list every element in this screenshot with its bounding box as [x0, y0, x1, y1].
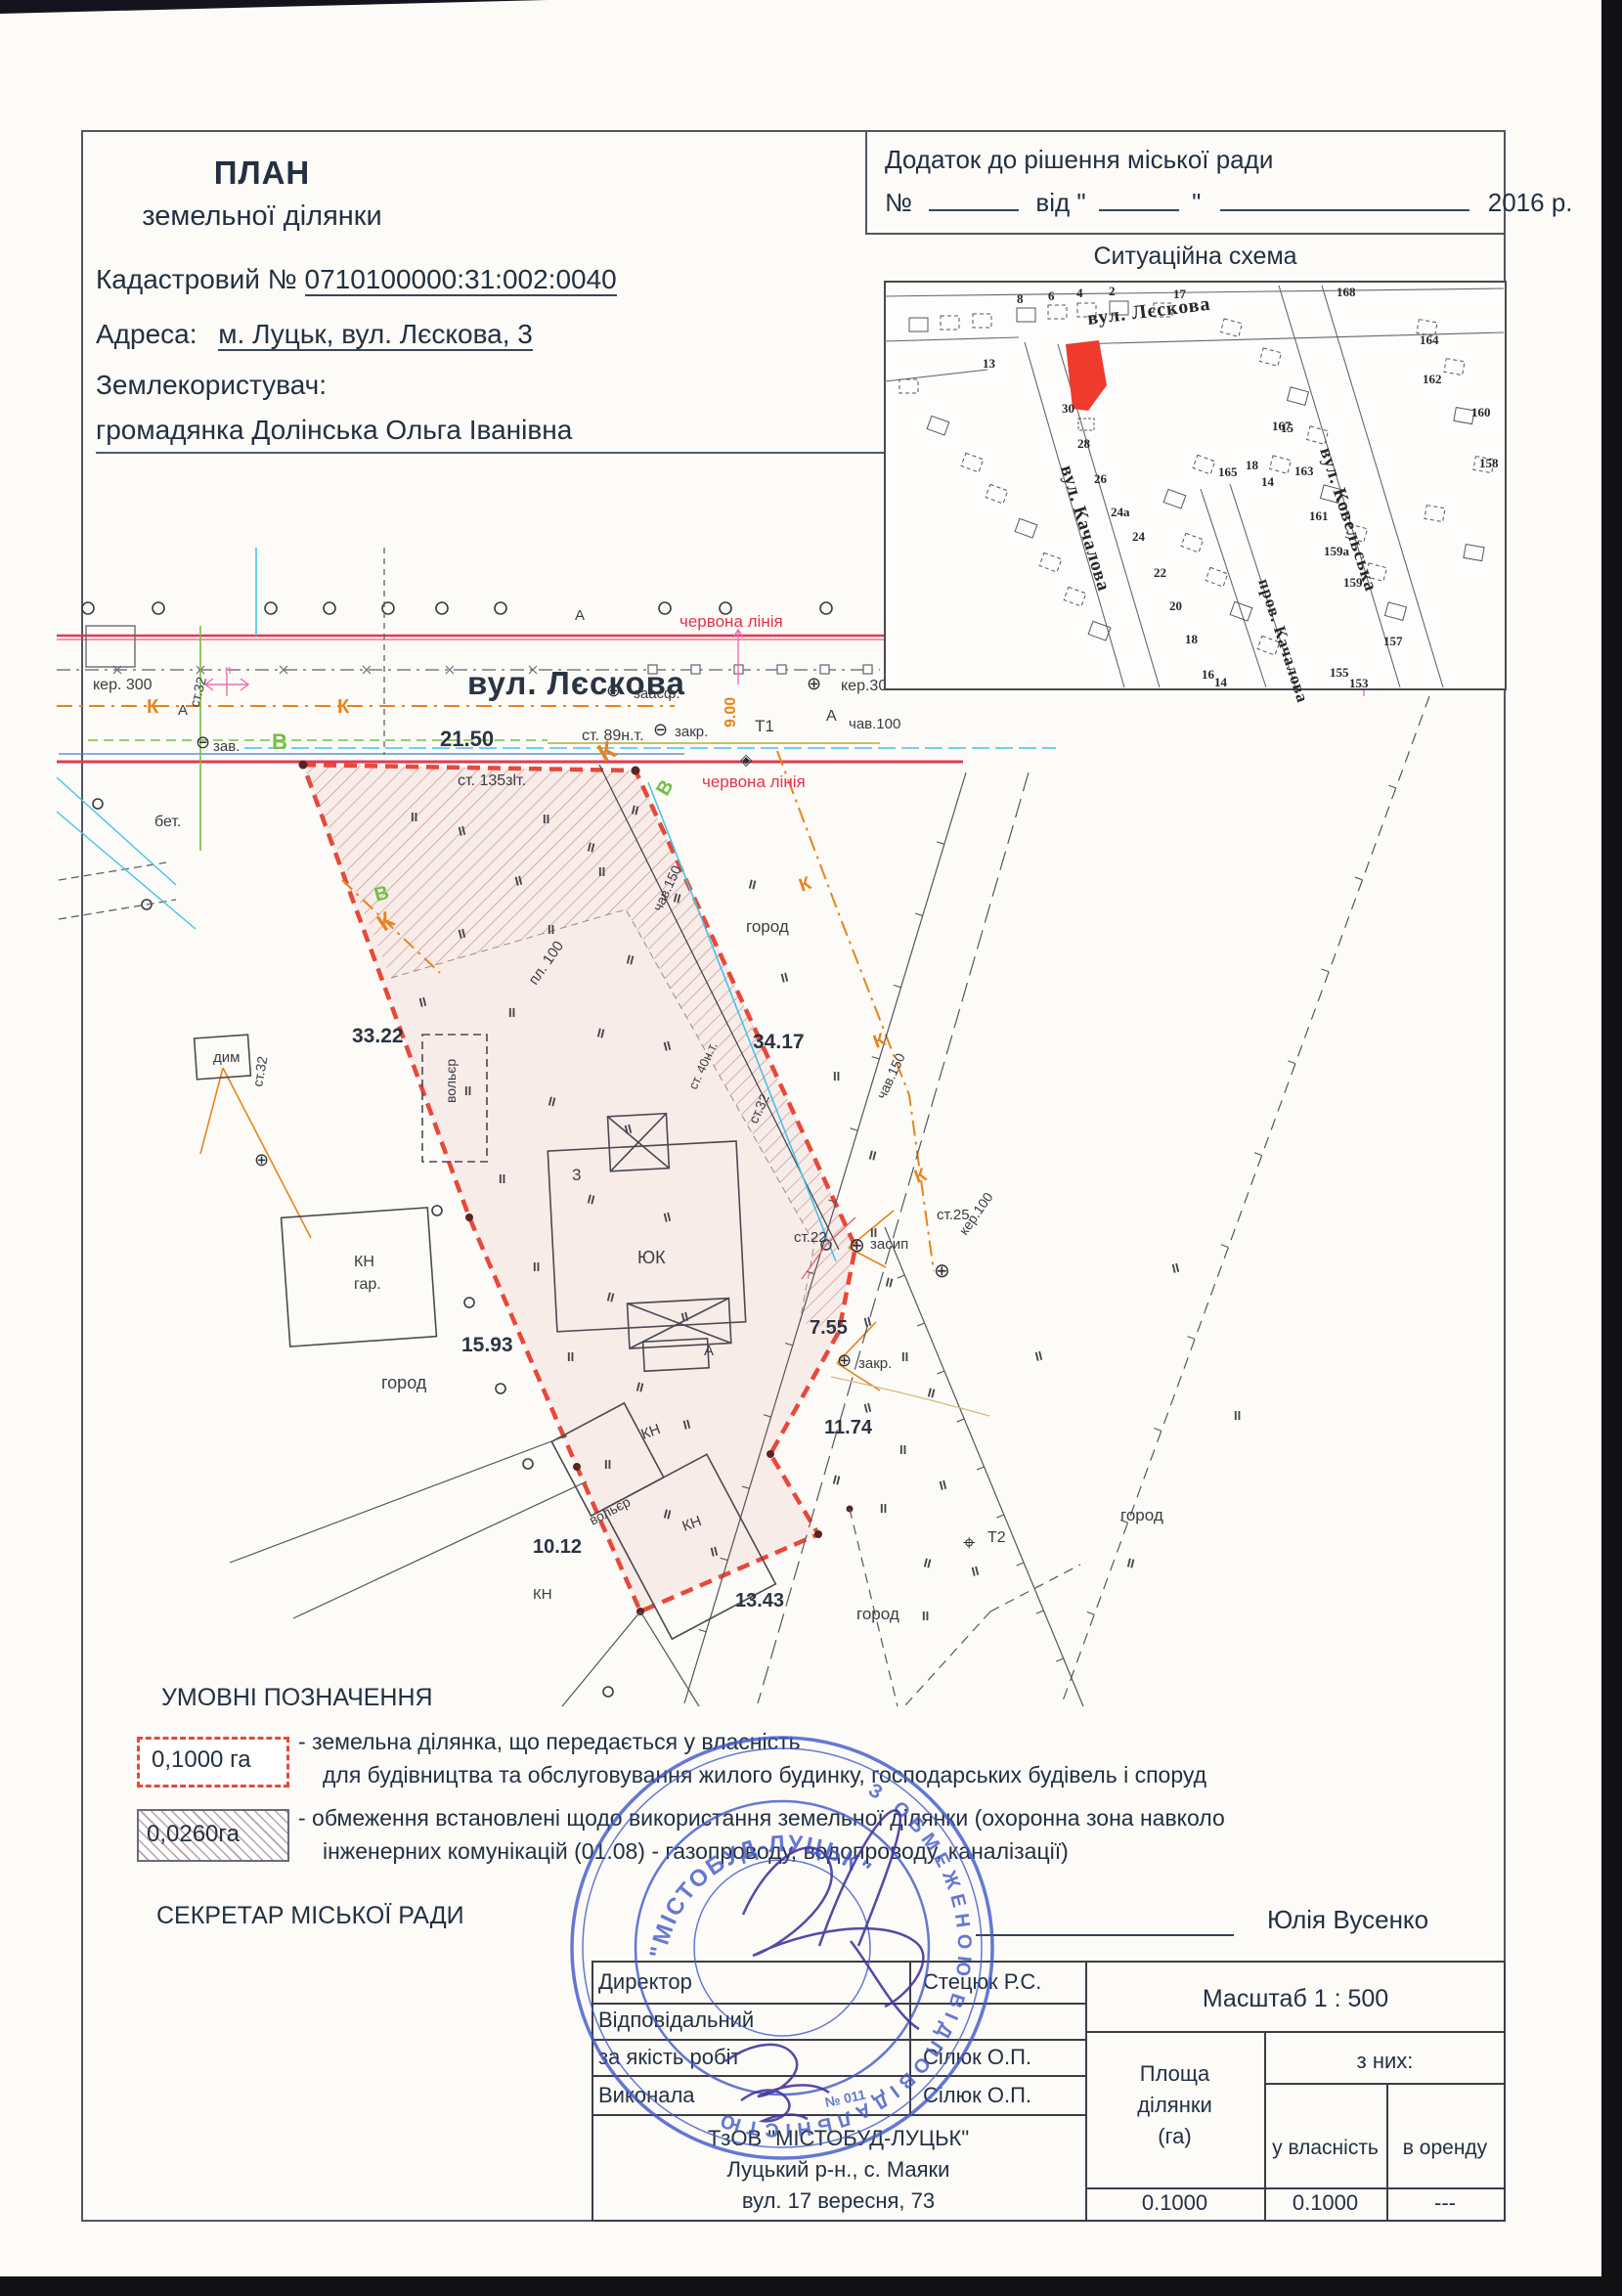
map-label: ст.22	[794, 1229, 827, 1246]
situation-house-number: 159	[1343, 575, 1363, 590]
grass-mark: II	[884, 1274, 895, 1290]
grass-mark: II	[586, 1191, 596, 1207]
situation-house	[941, 316, 959, 330]
map-label: ЮК	[637, 1248, 666, 1267]
grass-mark: II	[567, 1349, 574, 1364]
grass-mark: II	[508, 1005, 515, 1020]
survey-tick	[851, 1128, 858, 1130]
survey-tick	[1188, 1337, 1196, 1340]
map-label: К	[592, 734, 621, 768]
map-label: кер. 300	[93, 677, 153, 693]
frame-right	[1504, 130, 1506, 2222]
map-label: ст. 89н.т.	[582, 728, 644, 744]
address-label: Адреса:	[96, 319, 197, 349]
map-label: ст.32	[745, 1091, 772, 1126]
map-label: А	[178, 702, 188, 719]
map-label: В	[272, 729, 287, 754]
map-symbol-icon: ⌖	[963, 1531, 975, 1556]
secretary-label: СЕКРЕТАР МІСЬКОЇ РАДИ	[156, 1902, 464, 1930]
annex-line1: Додаток до рішення міської ради	[885, 145, 1273, 175]
responsible-label-1: Відповідальний	[598, 2008, 754, 2033]
map-label: закр.	[858, 1355, 892, 1372]
survey-tick	[1254, 1153, 1262, 1156]
grass-mark: II	[709, 1544, 720, 1560]
survey-tick	[807, 1271, 814, 1273]
survey-tick	[977, 1467, 984, 1470]
survey-tick	[721, 1558, 728, 1560]
map-label: 10.12	[533, 1536, 582, 1558]
grass-mark: II	[662, 1210, 673, 1225]
map-label: вул. Лєскова	[467, 665, 685, 701]
situation-house	[1163, 489, 1186, 508]
map-label: К	[373, 906, 400, 937]
situation-house	[973, 314, 991, 328]
map-symbol-icon: ◈	[740, 750, 753, 769]
map-label: 9.00	[723, 697, 739, 728]
situation-house	[961, 453, 984, 472]
frame-top	[81, 130, 1506, 132]
landuser-label: Землекористувач:	[96, 370, 327, 401]
situation-house	[1384, 602, 1406, 620]
situation-house	[1287, 387, 1308, 405]
grass-mark: II	[464, 1083, 471, 1098]
map-label: К	[797, 873, 814, 897]
survey-tick	[894, 985, 901, 987]
situation-street-label: пров. Качалова	[1254, 576, 1312, 705]
situation-house	[1015, 518, 1037, 538]
grass-mark: II	[595, 1025, 606, 1040]
map-symbol-icon: ⊕	[934, 1258, 950, 1282]
grass-mark: II	[1033, 1348, 1044, 1364]
map-label: К	[871, 1030, 889, 1053]
situation-house-number: 168	[1337, 285, 1356, 299]
cadastral-line: Кадастровий № 0710100000:31:002:0040	[96, 264, 617, 295]
grass-mark: II	[970, 1564, 981, 1579]
area-label-1: Площа	[1085, 2061, 1264, 2087]
legend-plot-value: 0,1000 га	[152, 1746, 251, 1774]
pen-enclosure	[422, 1035, 487, 1162]
map-label: город	[1120, 1506, 1163, 1524]
map-label: город	[746, 917, 789, 936]
map-label: чав.150	[649, 862, 684, 913]
situation-house-number: 165	[1218, 464, 1238, 479]
cadastral-label: Кадастровий №	[96, 264, 297, 294]
situation-house	[1064, 587, 1086, 606]
rent-label: в оренду	[1386, 2137, 1504, 2160]
outbuildings	[551, 1380, 775, 1645]
area-label-2: ділянки	[1085, 2093, 1264, 2118]
situation-house-number: 157	[1383, 634, 1403, 648]
map-label: чав.150	[873, 1050, 908, 1101]
area-label-3: (га)	[1085, 2124, 1264, 2149]
survey-tick	[1056, 1658, 1063, 1661]
situation-house	[1454, 408, 1474, 424]
grass-mark: II	[457, 823, 467, 839]
situation-house-number: 13	[983, 356, 996, 371]
map-symbol-icon: ⊕	[606, 681, 621, 701]
map-symbol-icon: ⊕	[807, 674, 821, 694]
survey-tick	[1120, 1520, 1128, 1523]
grass-mark: II	[1170, 1260, 1181, 1276]
page-subtitle: земельної ділянки	[115, 200, 409, 233]
map-symbol-icon: ⊖	[653, 720, 668, 740]
map-label: закр.	[675, 724, 708, 740]
grass-mark: II	[1125, 1555, 1136, 1570]
map-label: КН	[354, 1254, 374, 1270]
situation-house-number: 30	[1062, 401, 1074, 416]
annex-date-blank	[1099, 184, 1179, 211]
map-label: КН	[680, 1513, 704, 1535]
situation-house-number: 20	[1169, 598, 1182, 613]
annex-box-left	[865, 130, 867, 234]
map-label: Т1	[755, 717, 774, 735]
annex-no-blank	[929, 184, 1019, 211]
situation-house	[1077, 303, 1096, 317]
address-line: Адреса: м. Луцьк, вул. Лєскова, 3	[96, 319, 533, 350]
survey-tick	[1017, 1563, 1024, 1566]
survey-tick	[785, 1344, 793, 1346]
survey-tick	[828, 1200, 836, 1202]
situation-house	[1181, 533, 1204, 552]
situation-house	[1230, 601, 1252, 621]
grass-mark: II	[604, 1457, 611, 1472]
company-line2: Луцький р-н., с. Маяки	[592, 2157, 1085, 2183]
annex-vid-label: від "	[1035, 188, 1085, 217]
area-value: 0.1000	[1085, 2190, 1264, 2216]
situation-house-number: 161	[1309, 508, 1329, 523]
survey-tick	[1388, 785, 1396, 788]
situation-house-number: 158	[1479, 456, 1499, 470]
map-label: Т2	[987, 1529, 1006, 1546]
situation-house	[1259, 348, 1281, 366]
map-label: червона лінія	[702, 773, 806, 791]
survey-tick	[898, 1275, 904, 1278]
legend-restriction-line2: інженерних комунікацій (01.08) - газопро…	[323, 1838, 1069, 1865]
situation-house	[1017, 308, 1035, 322]
map-label: КН	[639, 1421, 663, 1443]
survey-tick	[1087, 1612, 1095, 1614]
map-label: гар.	[354, 1276, 381, 1293]
secretary-name: Юлія Вусенко	[1267, 1905, 1428, 1935]
annex-line2: № від " " 2016 р.	[885, 184, 1573, 218]
situation-house-number: 8	[1017, 291, 1024, 306]
annex-no-label: №	[885, 188, 912, 217]
map-label: 34.17	[753, 1031, 805, 1053]
landuser-value: громадянка Долінська Ольга Іванівна	[96, 415, 1445, 454]
map-label: зав.	[213, 738, 240, 755]
survey-tick	[937, 842, 944, 844]
map-label: чав.100	[849, 716, 900, 732]
map-label: город	[381, 1373, 427, 1392]
survey-tick	[1322, 969, 1330, 972]
situation-house	[1154, 303, 1172, 317]
grass-mark: II	[417, 994, 428, 1010]
grass-mark: II	[779, 970, 790, 986]
grass-mark: II	[938, 1478, 948, 1493]
situation-house-number: 24а	[1111, 505, 1130, 519]
grass-mark: II	[833, 1069, 840, 1083]
land-plot-area	[303, 765, 855, 1612]
survey-tick	[996, 1515, 1003, 1518]
rent-value: ---	[1386, 2190, 1504, 2216]
map-label: ст.32	[249, 1055, 270, 1088]
main-map	[57, 548, 1429, 1706]
legend-restriction-line1: - обмеження встановлені щодо використанн…	[298, 1805, 1225, 1832]
situation-house-number: 160	[1471, 405, 1491, 419]
map-label: город	[856, 1605, 899, 1623]
map-label: А	[1025, 607, 1034, 624]
survey-tick	[1355, 877, 1363, 880]
own-label: у власність	[1264, 2137, 1386, 2160]
situation-house	[1220, 319, 1242, 336]
situation-house	[899, 379, 918, 393]
map-label: кер.100	[955, 1189, 995, 1238]
map-label: 21.50	[440, 727, 494, 751]
situation-house	[1473, 457, 1494, 473]
situation-house	[909, 318, 928, 331]
situation-house-number: 155	[1330, 665, 1349, 680]
situation-house	[1320, 485, 1341, 503]
survey-tick	[1288, 1061, 1295, 1064]
situation-house	[1444, 359, 1465, 375]
grass-mark: II	[672, 890, 682, 905]
situation-street-label: вул. Ковельська	[1315, 445, 1381, 595]
map-label: КН	[533, 1586, 552, 1603]
page-title: ПЛАН	[115, 155, 409, 192]
situation-house-number: 6	[1048, 288, 1055, 303]
grass-mark: II	[662, 1506, 673, 1522]
map-label: п	[1364, 663, 1371, 677]
director-name: Стецюк Р.С.	[923, 1969, 1041, 1995]
map-label: ст.25	[937, 1207, 970, 1223]
map-label: вольєр	[587, 1493, 634, 1527]
survey-tick	[698, 1629, 706, 1631]
situation-street-label: вул. Качалова	[1056, 463, 1114, 594]
situation-house-number: 18	[1246, 458, 1259, 472]
grass-mark: II	[548, 922, 554, 937]
scan-artifact-bottom	[0, 2276, 1622, 2296]
grass-mark: II	[867, 1147, 878, 1163]
map-label: вольєр	[443, 1059, 459, 1103]
situation-house	[1039, 552, 1062, 572]
survey-tick	[872, 1057, 880, 1059]
survey-tick	[742, 1486, 750, 1488]
situation-house-number: 4	[1076, 286, 1083, 300]
situation-house-number: 14	[1214, 675, 1228, 689]
grass-mark: II	[533, 1259, 540, 1274]
legend-heading: УМОВНІ ПОЗНАЧЕННЯ	[161, 1684, 433, 1712]
situation-house-number: 164	[1420, 332, 1439, 347]
situation-house-number: 2	[1109, 284, 1116, 298]
grass-mark: II	[681, 1417, 692, 1433]
map-label: ст. 40н.т.	[685, 1039, 720, 1091]
responsible-name: Сілюк О.П.	[923, 2045, 1031, 2070]
grass-mark: II	[831, 1472, 842, 1487]
company-line3: вул. 17 вересня, 73	[592, 2188, 1085, 2214]
director-label: Директор	[598, 1969, 692, 1995]
map-label: п	[225, 663, 232, 677]
map-label: дим	[213, 1049, 240, 1066]
grass-mark: II	[598, 864, 605, 879]
survey-tick	[1036, 1611, 1043, 1613]
map-label: червона лінія	[679, 612, 783, 631]
grass-mark: II	[411, 810, 417, 824]
grass-mark: II	[922, 1555, 933, 1570]
situation-house	[1425, 506, 1445, 522]
map-label: 15.93	[461, 1334, 513, 1356]
legend-plot-line1: - земельна ділянка, що передається у вла…	[298, 1729, 801, 1755]
map-label: К	[147, 696, 159, 718]
grass-mark: II	[635, 1379, 645, 1394]
survey-tick	[917, 1323, 924, 1326]
map-label: К	[337, 696, 350, 718]
legend-plot-line2: для будівництва та обслуговування жилого…	[323, 1762, 1206, 1788]
map-label: 13.43	[735, 1590, 784, 1612]
grass-mark: II	[1234, 1408, 1241, 1423]
grass-mark: II	[543, 812, 549, 826]
grass-mark: II	[586, 839, 596, 855]
house-building	[547, 1110, 748, 1376]
scan-artifact-right	[1601, 0, 1622, 2296]
map-symbol-icon: ⊕	[254, 1150, 269, 1170]
map-label: 3	[572, 1166, 581, 1184]
map-symbol-icon: ⊕	[849, 1233, 865, 1257]
grass-mark: II	[547, 1093, 557, 1109]
situation-map: 168164162160158167163161159а159157155153…	[885, 282, 1506, 705]
scanned-land-plan-page: ПЛАН земельної ділянки Кадастровий № 071…	[0, 0, 1622, 2296]
grass-mark: II	[662, 1038, 673, 1054]
map-label: А	[704, 1343, 714, 1359]
restriction-zone-hatch	[303, 765, 855, 1332]
situation-house-number: 22	[1154, 565, 1166, 580]
grass-mark: II	[513, 873, 524, 889]
executor-name: Сілюк О.П.	[923, 2083, 1031, 2108]
responsible-label-2: за якість робіт	[598, 2045, 741, 2070]
grass-mark: II	[625, 951, 636, 967]
map-label: заасф.	[634, 685, 680, 702]
map-label: 11.74	[824, 1417, 873, 1438]
grass-mark: II	[457, 926, 467, 942]
grass-mark: II	[623, 1122, 634, 1137]
grass-mark: II	[499, 1171, 505, 1186]
grass-mark: II	[926, 1385, 937, 1400]
situation-house	[1048, 305, 1067, 319]
situation-house-number: 26	[1094, 471, 1108, 486]
frame-left	[81, 130, 83, 2222]
secretary-sign-line	[976, 1934, 1234, 1936]
map-label: 33.22	[352, 1025, 404, 1047]
situation-house	[986, 484, 1008, 504]
situation-house-number: 18	[1185, 632, 1199, 646]
situation-house-number: 163	[1294, 464, 1314, 478]
annex-month-blank	[1220, 184, 1469, 211]
situation-house	[1365, 563, 1386, 581]
map-label: В	[373, 882, 392, 906]
survey-tick	[957, 1419, 964, 1422]
map-label: ст. 135зlт.	[458, 773, 526, 789]
annex-quote: "	[1192, 188, 1201, 217]
situation-house	[1088, 621, 1111, 640]
grass-mark: II	[747, 876, 758, 892]
map-label: ст.32	[186, 675, 209, 709]
map-label: К	[912, 1165, 930, 1188]
situation-house	[1464, 545, 1484, 561]
own-value: 0.1000	[1264, 2190, 1386, 2216]
situation-house-number: 162	[1423, 372, 1442, 386]
situation-house-number: 17	[1173, 287, 1187, 301]
map-symbol-icon: ⊕	[837, 1350, 852, 1371]
executor-label: Виконала	[598, 2083, 695, 2108]
map-symbol-icon: ⊖	[196, 732, 210, 753]
situation-house	[1206, 567, 1228, 587]
stamp-number: № 011	[823, 2086, 867, 2109]
situation-street-label: вул. Лєскова	[1086, 293, 1212, 330]
map-label: пл. 100	[525, 938, 567, 988]
legend-restriction-value: 0,0260га	[147, 1821, 240, 1848]
grass-mark: II	[862, 1400, 873, 1416]
situation-house-number: 16	[1202, 667, 1215, 682]
address-value: м. Луцьк, вул. Лєскова, 3	[218, 319, 533, 351]
situation-house-number: 14	[1261, 474, 1275, 489]
map-label: бет.	[154, 814, 181, 830]
map-label: А	[826, 708, 837, 725]
annex-year: 2016 р.	[1488, 188, 1573, 217]
grass-mark: II	[899, 1442, 906, 1457]
map-label: В	[652, 776, 678, 800]
situation-title: Ситуаційна схема	[978, 243, 1413, 271]
grass-mark: II	[922, 1609, 929, 1623]
situation-house	[1110, 301, 1128, 315]
grass-mark: II	[679, 1309, 690, 1325]
map-label: засип	[870, 1236, 908, 1253]
cadastral-number: 0710100000:31:002:0040	[305, 264, 617, 296]
situation-house	[1257, 636, 1280, 655]
map-label: А	[575, 607, 585, 624]
situation-house	[1345, 524, 1367, 542]
grass-mark: II	[605, 1289, 616, 1304]
situation-house	[1269, 456, 1291, 473]
grass-mark: II	[630, 802, 640, 817]
company-line1: ТзОВ "МІСТОБУД-ЛУЦЬК"	[592, 2126, 1085, 2151]
scale-label: Масштаб 1 : 500	[1085, 1985, 1506, 2013]
situation-house-number: 153	[1349, 676, 1369, 690]
situation-house-number: 24	[1132, 529, 1146, 544]
survey-tick	[1221, 1245, 1229, 1248]
grass-mark: II	[901, 1349, 908, 1364]
situation-house-number: 159а	[1324, 544, 1350, 558]
grass-mark: II	[870, 1225, 877, 1240]
grass-mark: II	[862, 1314, 873, 1330]
grass-mark: II	[880, 1501, 887, 1516]
survey-tick	[764, 1415, 771, 1417]
situation-house	[1417, 320, 1437, 336]
land-plot-boundary	[303, 765, 855, 1612]
situation-house	[1193, 455, 1215, 474]
annex-box-bottom	[865, 233, 1504, 235]
map-label: 7.55	[810, 1317, 848, 1339]
survey-tick	[938, 1371, 944, 1374]
garage-building	[282, 1208, 437, 1347]
map-label: кер.300	[841, 678, 896, 694]
scan-artifact-top	[0, 0, 548, 14]
situation-highlighted-plot	[1066, 340, 1107, 411]
survey-tick	[1154, 1429, 1162, 1432]
survey-tick	[915, 913, 923, 915]
ofthem-label: з них:	[1264, 2049, 1506, 2074]
